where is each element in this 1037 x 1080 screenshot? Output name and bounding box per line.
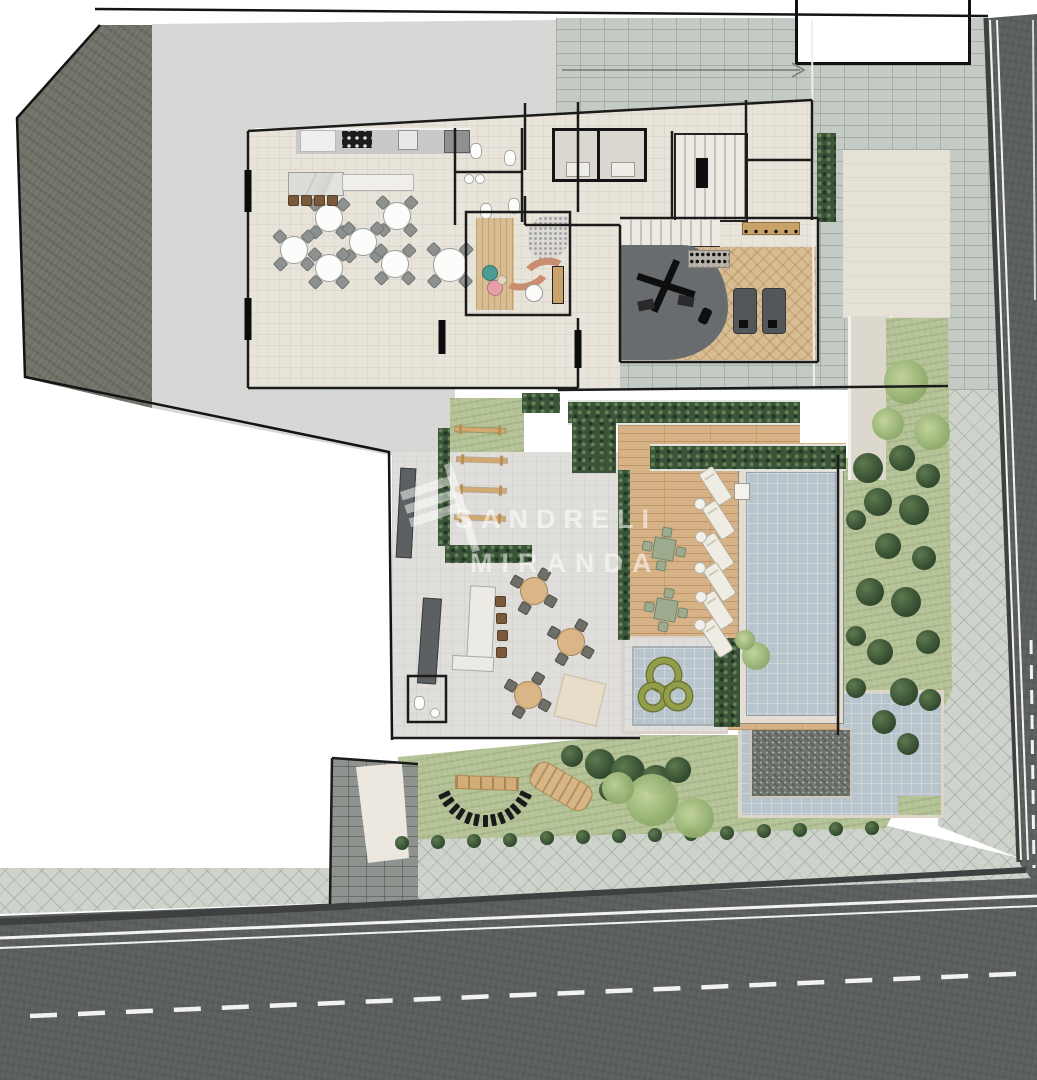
terrace-table xyxy=(552,623,590,661)
stepping-post xyxy=(490,814,497,827)
chair xyxy=(426,242,442,258)
stepping-post xyxy=(473,814,480,827)
chair xyxy=(503,678,518,693)
chair xyxy=(374,270,390,286)
furniture-layer xyxy=(0,0,1037,1080)
chair xyxy=(375,195,391,211)
float-ring xyxy=(664,682,692,710)
chair xyxy=(403,222,419,238)
chair xyxy=(458,273,474,289)
stepping-post xyxy=(497,811,506,824)
side-table xyxy=(694,619,706,631)
chair xyxy=(554,652,569,667)
chair xyxy=(458,242,474,258)
chair xyxy=(517,601,532,616)
dining-table xyxy=(274,230,314,270)
side-table xyxy=(695,591,707,603)
stepping-post xyxy=(483,815,488,827)
watermark-line2: MIRANDA xyxy=(470,550,661,577)
pouf xyxy=(482,265,498,281)
chair xyxy=(574,618,589,633)
chair xyxy=(401,270,417,286)
pet-hurdle xyxy=(455,427,505,433)
float-ring xyxy=(639,683,667,711)
chair xyxy=(335,274,351,290)
chair xyxy=(511,705,526,720)
bar-stool xyxy=(327,195,338,206)
chair xyxy=(427,273,443,289)
chair xyxy=(663,587,675,599)
chair xyxy=(335,197,351,213)
chair xyxy=(675,546,687,558)
chair xyxy=(272,229,288,245)
chair xyxy=(677,607,689,619)
chair xyxy=(531,671,546,686)
bar-stool xyxy=(288,195,299,206)
site-plan-rendering: SANDRELI MIRANDA xyxy=(0,0,1037,1080)
pet-hurdle xyxy=(457,457,507,463)
chair xyxy=(308,274,324,290)
bar-stool xyxy=(496,647,507,658)
dining-table xyxy=(375,244,415,284)
chair xyxy=(657,621,669,633)
head-table xyxy=(426,241,474,289)
side-table xyxy=(695,531,707,543)
chair xyxy=(643,601,655,613)
chair xyxy=(403,195,419,211)
stepping-post xyxy=(464,811,473,824)
deck-table xyxy=(653,597,678,622)
chair xyxy=(537,698,552,713)
dining-table xyxy=(309,248,349,288)
side-table xyxy=(694,562,706,574)
bar-stool xyxy=(314,195,325,206)
terrace-table xyxy=(509,676,547,714)
chair xyxy=(661,526,673,538)
bar-stool xyxy=(497,630,508,641)
side-table xyxy=(694,498,706,510)
chair xyxy=(546,625,561,640)
pouf xyxy=(497,275,507,285)
chair xyxy=(580,645,595,660)
pet-hurdle xyxy=(456,487,506,493)
chair xyxy=(401,243,417,259)
chair xyxy=(273,256,289,272)
bar-stool xyxy=(495,596,506,607)
watermark-line1: SANDRELI xyxy=(455,506,657,533)
bar-stool xyxy=(301,195,312,206)
bar-stool xyxy=(496,613,507,624)
chair xyxy=(543,594,558,609)
